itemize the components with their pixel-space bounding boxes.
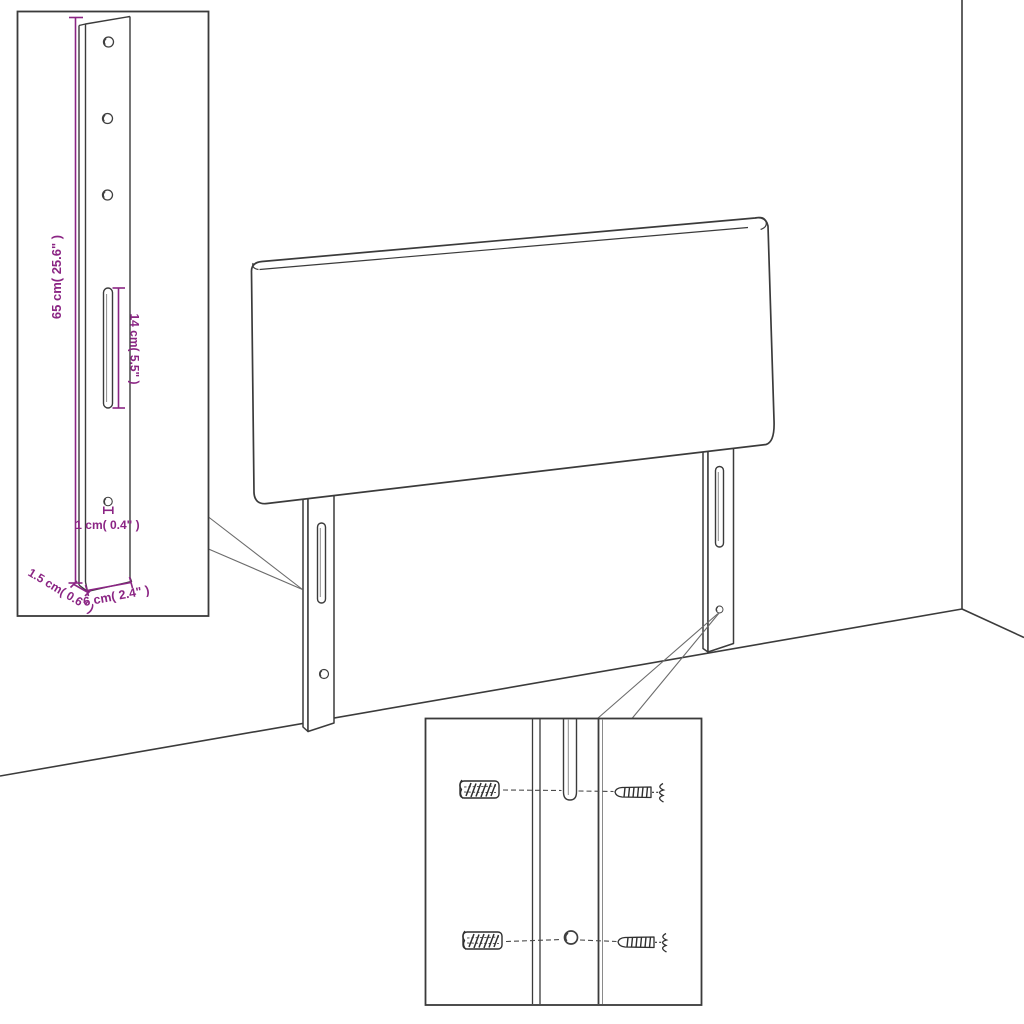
dimension-label-leg-height: 65 cm( 25.6" )	[49, 235, 64, 319]
mounting-hardware-inset	[426, 719, 702, 1006]
headboard-panel	[251, 217, 774, 503]
hole-closeup	[565, 931, 578, 944]
left-leg-hole	[320, 670, 329, 679]
leg-dimension-inset: 65 cm( 25.6" ) 14 cm( 5.5" ) 1 cm( 0.4" …	[18, 12, 209, 617]
left-leg	[303, 486, 334, 732]
leader-lines-bottom-inset	[598, 613, 720, 719]
right-leg-hole	[716, 606, 723, 613]
wall-plug-bottom	[463, 931, 502, 950]
leader-lines-left-inset	[209, 517, 303, 590]
floor-line-right	[962, 609, 1024, 638]
bracket-slot	[104, 288, 113, 408]
headboard-assembly-diagram: 65 cm( 25.6" ) 14 cm( 5.5" ) 1 cm( 0.4" …	[0, 0, 1024, 1024]
wall-plug-top	[460, 780, 499, 799]
bracket-hole-4	[104, 497, 113, 506]
bracket-hole-2	[103, 114, 113, 124]
panel-outline	[251, 218, 774, 504]
diagram-page: 65 cm( 25.6" ) 14 cm( 5.5" ) 1 cm( 0.4" …	[0, 0, 1024, 1024]
dimension-label-slot-length: 14 cm( 5.5" )	[128, 313, 142, 384]
dimension-label-hole-diameter: 1 cm( 0.4" )	[75, 518, 139, 532]
bracket-hole-1	[104, 37, 114, 47]
bracket-hole-3	[103, 190, 113, 200]
right-leg-slot	[716, 467, 724, 548]
left-leg-slot	[318, 523, 326, 603]
